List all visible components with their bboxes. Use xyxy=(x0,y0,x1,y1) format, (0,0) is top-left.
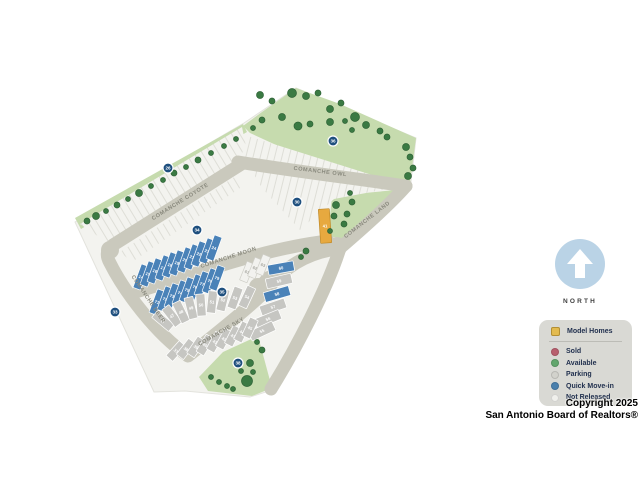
marker-number: 36 xyxy=(330,139,336,144)
map-marker-26[interactable]: 26 xyxy=(163,163,173,173)
tree-icon xyxy=(338,100,344,106)
map-marker-33[interactable]: 33 xyxy=(110,307,120,317)
tree-icon xyxy=(351,113,360,122)
map-marker-36[interactable]: 36 xyxy=(328,136,338,146)
tree-icon xyxy=(234,137,239,142)
tree-icon xyxy=(217,380,222,385)
legend-swatch-circle xyxy=(551,371,559,379)
tree-icon xyxy=(377,128,383,134)
tree-icon xyxy=(84,218,90,224)
tree-icon xyxy=(288,89,297,98)
tree-icon xyxy=(405,173,412,180)
tree-icon xyxy=(343,119,348,124)
legend-label: Parking xyxy=(566,371,592,378)
junction-bulb-west xyxy=(101,241,119,259)
tree-icon xyxy=(348,191,353,196)
map-marker-38[interactable]: 38 xyxy=(233,358,243,368)
north-label: NORTH xyxy=(551,298,609,305)
map-marker-35[interactable]: 35 xyxy=(217,287,227,297)
copyright-line1: Copyright 2025 xyxy=(485,398,638,410)
tree-icon xyxy=(242,376,253,387)
legend-swatch-square xyxy=(551,327,560,336)
tree-icon xyxy=(209,151,214,156)
tree-icon xyxy=(307,121,313,127)
legend-item-model-homes: Model Homes xyxy=(551,327,632,336)
legend-item-quick-move-in: Quick Move-in xyxy=(551,382,632,391)
tree-icon xyxy=(327,106,334,113)
tree-icon xyxy=(251,370,256,375)
north-indicator: NORTH xyxy=(551,236,609,300)
marker-number: 38 xyxy=(235,361,241,366)
copyright-line2: San Antonio Board of Realtors® xyxy=(485,410,638,422)
tree-icon xyxy=(363,122,370,129)
tree-icon xyxy=(209,375,214,380)
legend-item-available: Available xyxy=(551,359,632,368)
tree-icon xyxy=(294,122,302,130)
tree-icon xyxy=(344,211,350,217)
legend: Model HomesSoldAvailableParkingQuick Mov… xyxy=(539,320,632,406)
tree-icon xyxy=(93,213,100,220)
tree-icon xyxy=(239,369,244,374)
copyright-notice: Copyright 2025 San Antonio Board of Real… xyxy=(485,398,638,422)
tree-icon xyxy=(299,255,304,260)
legend-label: Quick Move-in xyxy=(566,383,614,390)
tree-icon xyxy=(126,197,131,202)
tree-icon xyxy=(327,119,334,126)
tree-icon xyxy=(331,213,337,219)
tree-icon xyxy=(259,347,265,353)
marker-number: 34 xyxy=(194,228,200,233)
tree-icon xyxy=(303,93,310,100)
site-map-page: 1415161718192021222324717273747576777879… xyxy=(0,0,640,480)
marker-number: 33 xyxy=(112,310,118,315)
tree-icon xyxy=(279,114,286,121)
legend-label: Model Homes xyxy=(567,328,613,335)
tree-icon xyxy=(410,165,416,171)
tree-icon xyxy=(315,90,321,96)
tree-icon xyxy=(259,117,265,123)
lot-41-model[interactable]: 41 xyxy=(318,209,331,244)
map-marker-34[interactable]: 34 xyxy=(192,225,202,235)
tree-icon xyxy=(255,340,260,345)
tree-icon xyxy=(349,199,355,205)
tree-icon xyxy=(403,144,410,151)
north-arrow-icon xyxy=(552,236,608,292)
tree-icon xyxy=(269,98,275,104)
map-marker-30[interactable]: 30 xyxy=(292,197,302,207)
tree-icon xyxy=(225,384,230,389)
legend-divider xyxy=(549,341,622,342)
tree-icon xyxy=(136,190,143,197)
tree-icon xyxy=(231,387,236,392)
legend-swatch-circle xyxy=(551,382,559,390)
tree-icon xyxy=(341,221,347,227)
legend-item-sold: Sold xyxy=(551,347,632,356)
tree-icon xyxy=(184,165,189,170)
tree-icon xyxy=(333,202,340,209)
tree-icon xyxy=(104,209,109,214)
tree-icon xyxy=(257,92,264,99)
legend-label: Available xyxy=(566,360,596,367)
legend-swatch-circle xyxy=(551,348,559,356)
tree-icon xyxy=(149,184,154,189)
tree-icon xyxy=(328,229,333,234)
tree-icon xyxy=(303,248,309,254)
lot-50-gray[interactable]: 50 xyxy=(196,294,207,317)
legend-label: Sold xyxy=(566,348,581,355)
tree-icon xyxy=(247,360,254,367)
lot-51-gray[interactable]: 51 xyxy=(206,291,217,314)
marker-number: 30 xyxy=(294,200,300,205)
tree-icon xyxy=(384,134,390,140)
tree-icon xyxy=(350,128,355,133)
marker-number: 26 xyxy=(165,166,171,171)
legend-item-parking: Parking xyxy=(551,370,632,379)
marker-number: 35 xyxy=(219,290,225,295)
tree-icon xyxy=(161,178,166,183)
legend-swatch-circle xyxy=(551,359,559,367)
tree-icon xyxy=(222,144,227,149)
tree-icon xyxy=(407,154,413,160)
tree-icon xyxy=(195,157,201,163)
tree-icon xyxy=(251,126,256,131)
tree-icon xyxy=(114,202,120,208)
